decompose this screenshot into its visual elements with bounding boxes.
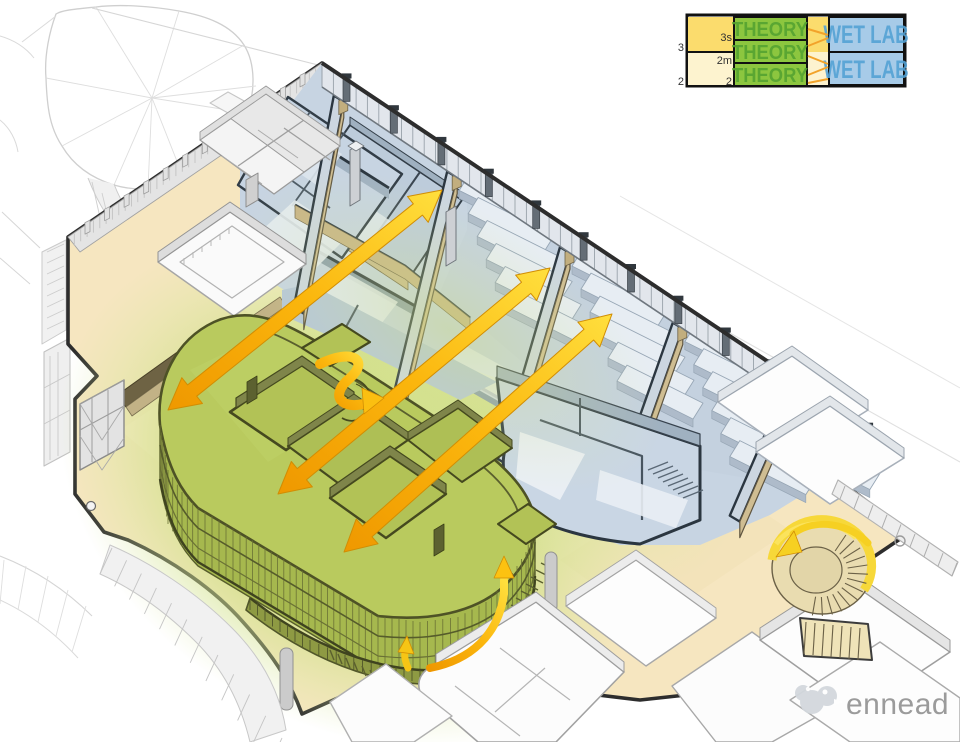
svg-text:THEORY: THEORY <box>732 19 808 41</box>
svg-text:2: 2 <box>678 76 684 88</box>
svg-text:THEORY: THEORY <box>732 42 808 64</box>
svg-text:2: 2 <box>726 76 732 88</box>
svg-text:3: 3 <box>678 42 684 54</box>
svg-text:WET LAB: WET LAB <box>823 20 908 48</box>
svg-text:THEORY: THEORY <box>732 65 808 87</box>
svg-text:ennead: ennead <box>846 688 949 721</box>
svg-text:2m: 2m <box>717 55 732 67</box>
svg-text:WET LAB: WET LAB <box>823 55 908 83</box>
svg-text:3s: 3s <box>720 32 732 44</box>
